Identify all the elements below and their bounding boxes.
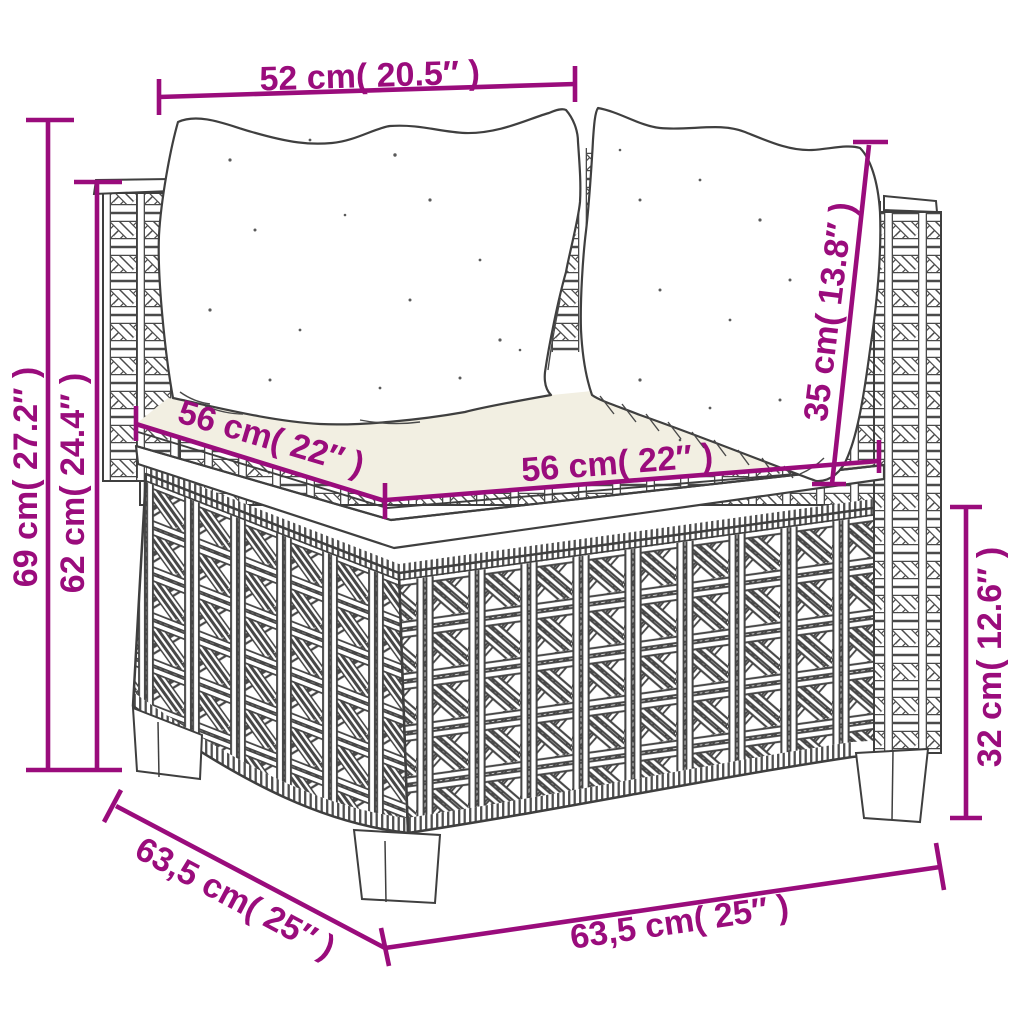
svg-text:62 cm( 24.4″ ): 62 cm( 24.4″ ): [54, 373, 92, 593]
svg-text:52 cm( 20.5″ ): 52 cm( 20.5″ ): [259, 54, 480, 99]
svg-text:69 cm( 27.2″ ): 69 cm( 27.2″ ): [7, 367, 45, 587]
svg-text:32 cm( 12.6″ ): 32 cm( 12.6″ ): [971, 547, 1009, 767]
